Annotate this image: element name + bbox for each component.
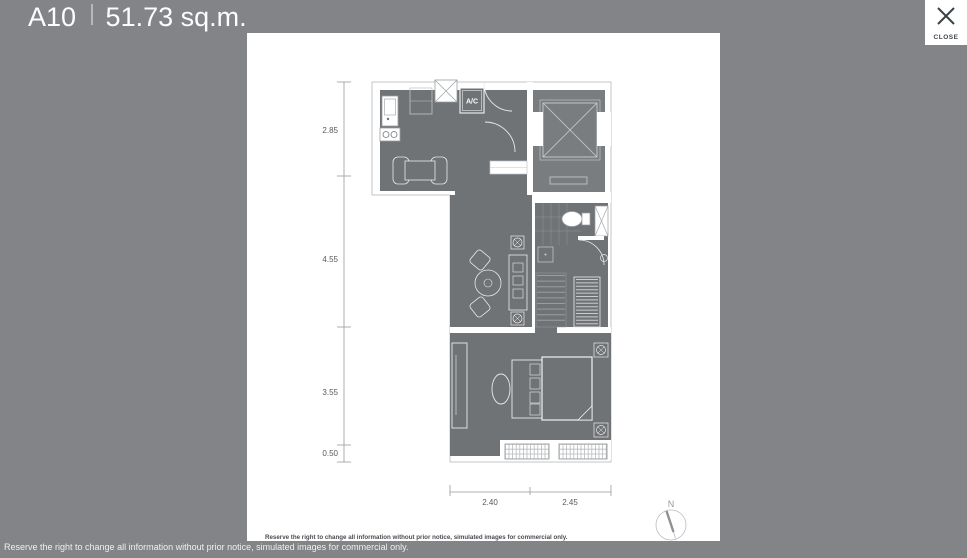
shaft-box	[435, 80, 457, 102]
page-title: A10 51.73 sq.m.	[28, 2, 247, 33]
unit-name: A10	[28, 2, 76, 33]
floorplan-drawing: A/C	[247, 33, 720, 541]
dim-label: 2.40	[482, 498, 498, 507]
close-icon	[936, 6, 956, 31]
plan-disclaimer: Reserve the right to change all informat…	[265, 534, 567, 541]
compass: N	[656, 499, 686, 540]
unit-area: 51.73 sq.m.	[106, 2, 247, 33]
dim-label: 3.55	[322, 388, 338, 397]
ac-label: A/C	[466, 99, 478, 106]
compass-label: N	[668, 499, 675, 509]
dim-label: 2.85	[322, 126, 338, 135]
footer-disclaimer: Reserve the right to change all informat…	[4, 542, 409, 552]
toilet	[562, 212, 582, 227]
title-separator	[91, 4, 93, 25]
bath-shaft	[595, 206, 608, 236]
ac-unit: A/C	[460, 88, 484, 113]
close-button[interactable]: CLOSE	[925, 0, 967, 45]
floorplan-panel: A/C	[247, 33, 720, 541]
bedroom-door-opening	[535, 327, 557, 333]
dim-label: 2.45	[562, 498, 578, 507]
close-label: CLOSE	[934, 34, 959, 41]
dim-label: 4.55	[322, 255, 338, 264]
dim-label: 0.50	[322, 449, 338, 458]
